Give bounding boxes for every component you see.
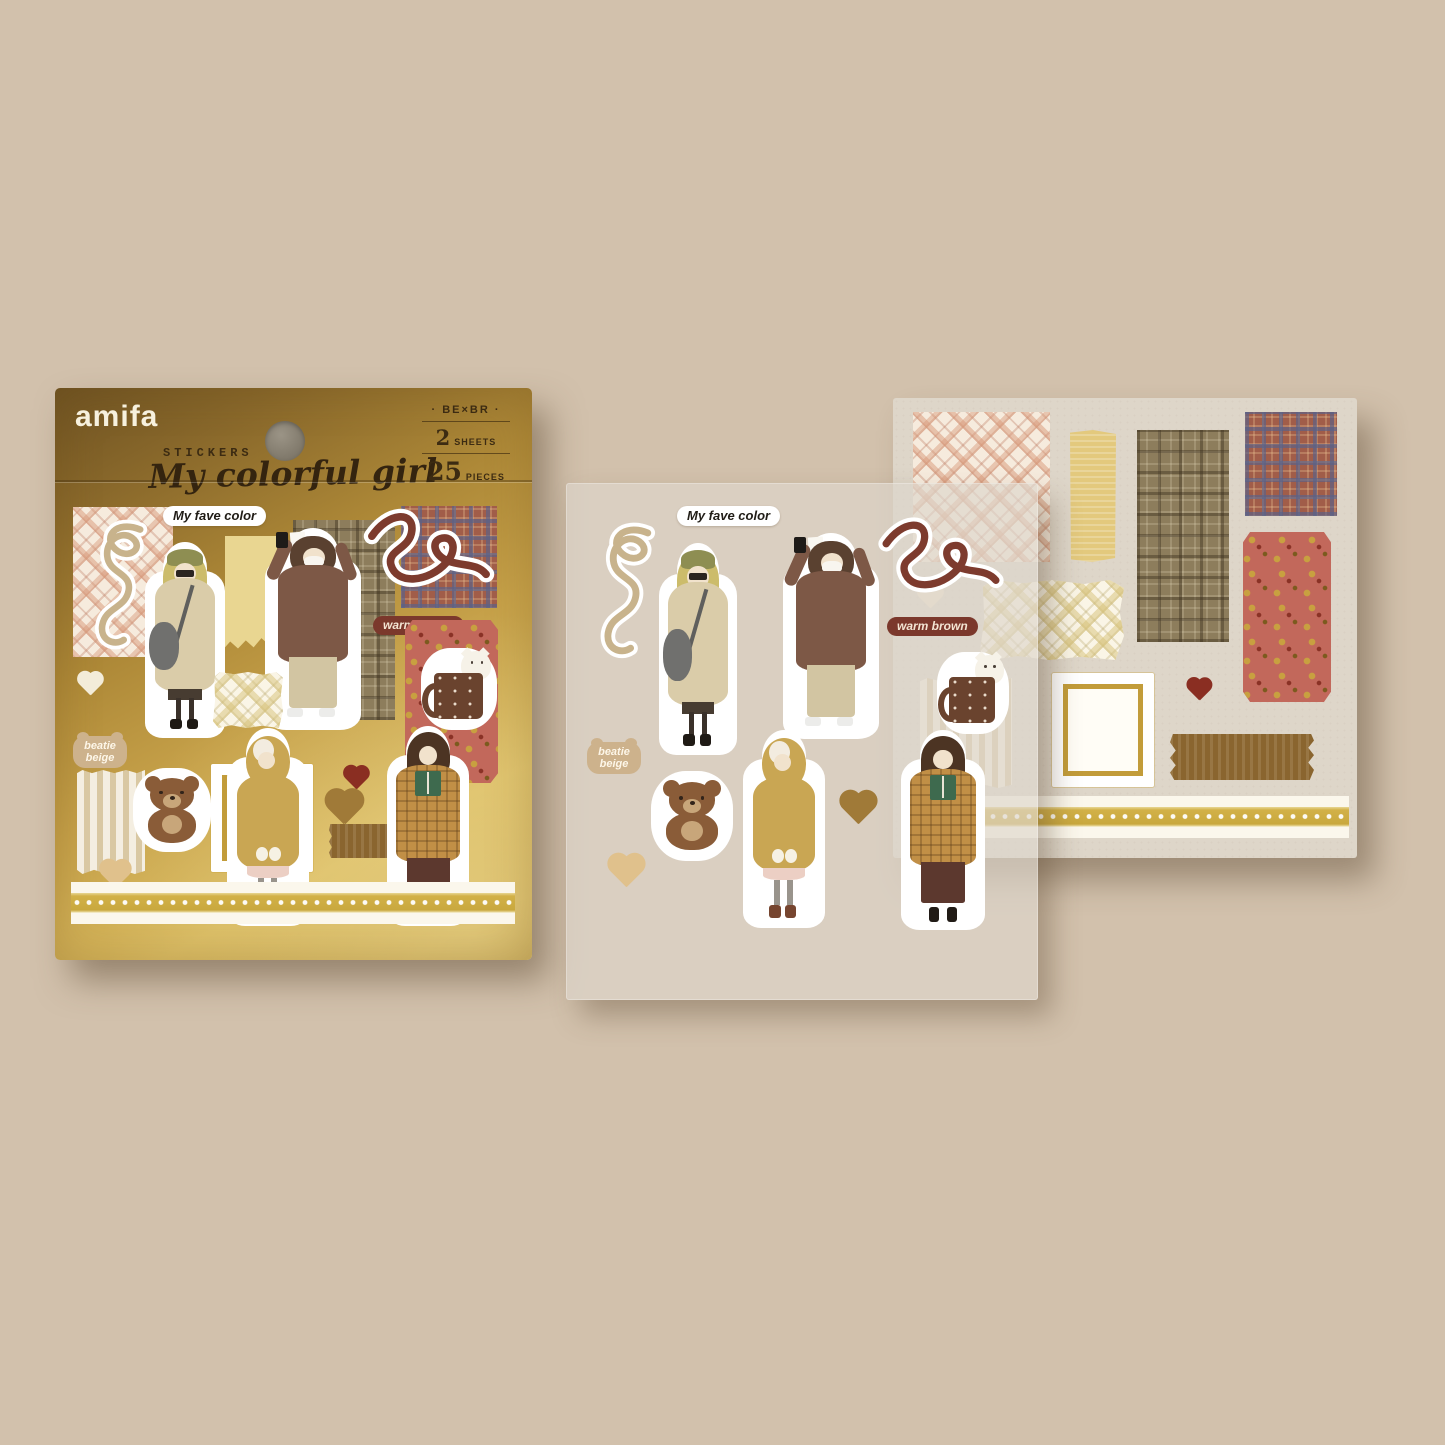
product-title: My colorful girl xyxy=(133,451,454,497)
sheets-count: 2 xyxy=(436,425,451,450)
sticker-girl-brown-coat xyxy=(781,537,881,737)
red-floral-paper xyxy=(1243,532,1331,702)
heart-sticker xyxy=(837,791,879,831)
sticker-package: amifa STICKERS My colorful girl · BE×BR … xyxy=(55,388,532,960)
yellow-tape-sticker xyxy=(1070,430,1116,562)
beatie-beige-label: beatie beige xyxy=(73,736,127,768)
pieces-count: 25 xyxy=(427,457,462,486)
fave-color-label: My fave color xyxy=(677,506,780,526)
diamond-plaid-paper xyxy=(213,672,283,728)
ribbon-sticker xyxy=(877,506,1005,608)
pieces-count-row: 25PIECES xyxy=(422,457,510,486)
teddy-bear-sticker xyxy=(653,774,731,858)
sticker-girl-reading xyxy=(899,734,987,928)
cocoa-mug-sticker xyxy=(423,650,495,728)
heart-sticker xyxy=(1185,678,1213,705)
divider xyxy=(422,453,510,454)
brand-logo: amifa xyxy=(75,400,158,434)
sticker-sheet-figures: My fave color warm brown beatie beige xyxy=(566,483,1038,1000)
warm-brown-label: warm brown xyxy=(887,617,978,636)
beatie-beige-label: beatie beige xyxy=(587,742,641,774)
ribbon-sticker xyxy=(361,500,497,600)
heart-sticker xyxy=(605,854,647,894)
pieces-label: PIECES xyxy=(466,472,505,482)
brown-tartan-paper xyxy=(1137,430,1229,642)
washi-tape-sticker xyxy=(1170,734,1314,780)
gold-frame-sticker xyxy=(1052,673,1154,787)
sheets-label: SHEETS xyxy=(454,437,496,447)
heart-sticker xyxy=(75,672,105,700)
cocoa-mug-sticker xyxy=(939,654,1007,732)
fave-color-label: My fave color xyxy=(163,506,266,526)
color-code: · BE×BR · xyxy=(431,404,500,416)
product-photo: amifa STICKERS My colorful girl · BE×BR … xyxy=(0,0,1445,1445)
sticker-girl-beige-coat xyxy=(657,547,739,753)
spec-block: · BE×BR · 2SHEETS 25PIECES xyxy=(422,400,510,486)
lace-trim xyxy=(71,882,515,924)
sheets-count-row: 2SHEETS xyxy=(422,425,510,450)
sticker-girl-mustard-hood xyxy=(741,734,827,926)
divider xyxy=(422,421,510,422)
redblue-plaid-paper xyxy=(1245,412,1337,516)
teddy-bear-sticker xyxy=(135,770,209,850)
